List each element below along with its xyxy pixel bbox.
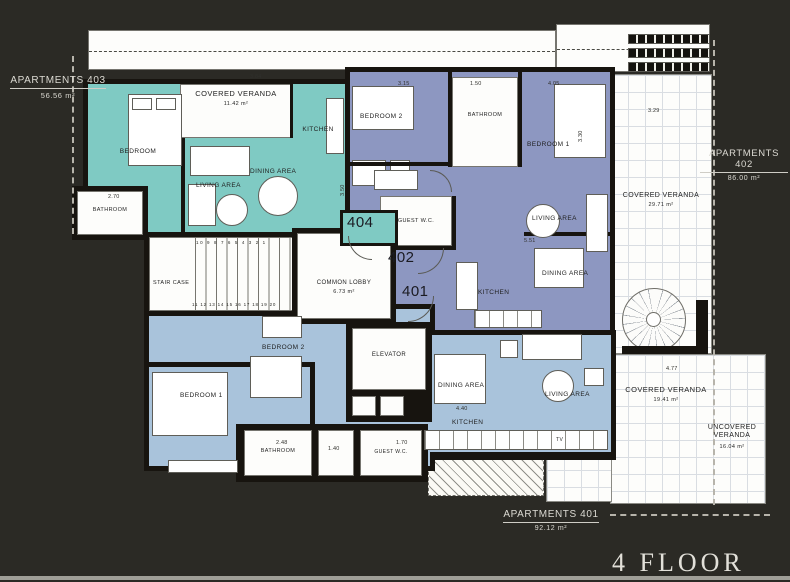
floor-plan: BEDROOM COVERED VERANDA 11.42 m² KITCHEN…: [0, 0, 790, 582]
dimension: 3.29: [648, 108, 660, 114]
apartment-401-name: APARTMENTS 401: [503, 509, 598, 523]
dimension: 3.30: [578, 130, 584, 142]
floor-title: 4 FLOOR: [612, 548, 745, 578]
apt402-bathroom: [452, 77, 518, 167]
stair-treads: [195, 237, 297, 311]
room-label-kitchen-401: KITCHEN: [452, 419, 483, 426]
furniture-sofa: [586, 194, 608, 252]
veranda-right-label: COVERED VERANDA: [613, 192, 709, 200]
furniture-side-table: [584, 368, 604, 386]
dimension: 3.50: [340, 184, 346, 196]
dimension: 1.50: [470, 81, 482, 87]
roof-ridge-line: [89, 51, 555, 52]
furniture-dresser: [374, 170, 418, 190]
apartment-403-area: 56.56 m²: [2, 91, 114, 100]
room-label-bedroom-403: BEDROOM: [98, 148, 178, 155]
veranda-bottom-label: COVERED VERANDA: [614, 386, 718, 395]
room-label-living-401: LIVING AREA: [545, 391, 590, 398]
room-label-guestwc-401: GUEST W.C.: [360, 450, 422, 456]
furniture-kitchen-counter: [424, 430, 608, 450]
furniture-bed: [250, 356, 302, 398]
room-label-bathroom-402: BATHROOM: [452, 112, 518, 118]
dimension: 2.48: [276, 440, 288, 446]
dimension: 5.51: [524, 238, 536, 244]
unit-number-404: 404: [347, 214, 374, 231]
apartment-402-label: APARTMENTS 402 86.00 m²: [700, 148, 788, 182]
furniture-kitchen-counter: [474, 310, 542, 328]
shaft: [352, 396, 376, 416]
room-label-bathroom-401: BATHROOM: [244, 448, 312, 454]
room-label-dining-403: DINING AREA: [250, 168, 296, 175]
room-label-living-402: LIVING AREA: [532, 215, 577, 222]
dimension: 4.05: [548, 81, 560, 87]
apartment-401-area: 92.12 m²: [498, 525, 604, 532]
furniture-armchair: [188, 184, 216, 226]
room-label-elevator: ELEVATOR: [352, 352, 426, 359]
veranda-bottom-area: 19.41 m²: [614, 397, 718, 403]
furniture-dining-table: [434, 354, 486, 404]
furniture-desk: [262, 316, 302, 338]
room-label-bedroom2-401: BEDROOM 2: [262, 344, 305, 351]
room-label-lobby-area: 6.73 m²: [299, 289, 389, 295]
veranda-uncovered-label: UNCOVERED VERANDA: [700, 424, 764, 440]
apt402-partition: [350, 162, 450, 166]
furniture-rug: [216, 194, 248, 226]
room-label-veranda-area-403: 11.42 m²: [182, 101, 290, 107]
furniture-pillow: [132, 98, 152, 110]
room-label-staircase: STAIR CASE: [153, 280, 189, 286]
dimension: 3.15: [398, 81, 410, 87]
stair-numbers-bottom: 11 12 13 14 15 16 17 18 19 20: [192, 302, 276, 307]
stair-numbers-top: 10 9 8 7 6 5 4 3 2 1: [196, 240, 267, 245]
room-label-dining-402: DINING AREA: [542, 270, 588, 277]
furniture-dining-table: [258, 176, 298, 216]
dimension: 3.84: [250, 74, 262, 80]
furniture-kitchen-counter: [456, 262, 478, 310]
room-label-kitchen-402: KITCHEN: [478, 289, 509, 296]
room-label-veranda-403: COVERED VERANDA: [182, 90, 290, 99]
dimension: 4.77: [666, 366, 678, 372]
hatched-area: [428, 456, 544, 496]
furniture-sofa: [190, 146, 250, 176]
apartment-403-name: APARTMENTS 403: [10, 75, 105, 89]
room-label-guestwc-402: GUEST W.C.: [382, 218, 450, 224]
furniture-pillow: [156, 98, 176, 110]
spiral-hub: [646, 312, 661, 327]
pergola-louver: [628, 62, 710, 72]
apartment-401-label: APARTMENTS 401 92.12 m²: [498, 504, 604, 532]
apt402-partition: [452, 196, 456, 246]
apt401-shaft: [318, 430, 354, 476]
furniture-dining-table: [534, 248, 584, 288]
furniture-sofa: [522, 334, 582, 360]
apt402-partition: [518, 72, 522, 167]
furniture-armchair: [500, 340, 518, 358]
veranda-right-area: 29.71 m²: [613, 202, 709, 208]
dimension: 1.70: [396, 440, 408, 446]
balcony-sill: [168, 460, 238, 473]
veranda-uncovered-area: 16.04 m²: [700, 444, 764, 450]
tv-label: TV: [556, 438, 563, 444]
elevator: [352, 328, 426, 390]
room-label-bathroom-403: BATHROOM: [78, 207, 142, 213]
room-label-bedroom2-402: BEDROOM 2: [360, 113, 403, 120]
dimension: 4.40: [456, 406, 468, 412]
dimension: 1.40: [328, 446, 340, 452]
furniture-bed: [352, 86, 414, 130]
unit-number-402: 402: [388, 249, 415, 266]
pergola-louver: [628, 34, 710, 44]
room-label-dining-401: DINING AREA: [438, 382, 484, 389]
apartment-403-label: APARTMENTS 403 56.56 m²: [2, 70, 114, 100]
room-label-living-403: LIVING AREA: [196, 182, 241, 189]
apartment-402-area: 86.00 m²: [700, 175, 788, 182]
dimension: 2.70: [108, 194, 120, 200]
boundary-line: [610, 514, 770, 516]
shaft: [380, 396, 404, 416]
room-label-kitchen-403: KITCHEN: [292, 126, 344, 133]
furniture-bed: [152, 372, 228, 436]
apt402-partition: [448, 72, 452, 167]
roof-strip-left: [88, 30, 556, 70]
apartment-402-name: APARTMENTS 402: [700, 148, 788, 173]
room-label-bedroom1-401: BEDROOM 1: [180, 392, 223, 399]
room-label-lobby: COMMON LOBBY: [299, 280, 389, 287]
room-label-bedroom1-402: BEDROOM 1: [527, 141, 570, 148]
pergola-louver: [628, 48, 710, 58]
unit-number-401: 401: [402, 283, 429, 300]
